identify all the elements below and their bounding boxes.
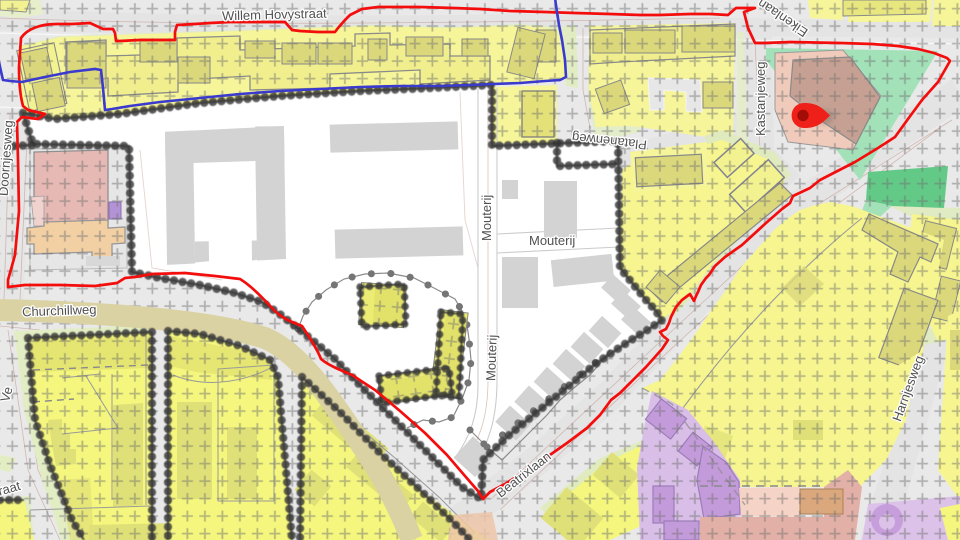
svg-text:Kastanjeweg: Kastanjeweg <box>753 62 768 136</box>
svg-text:Mouterij: Mouterij <box>529 233 575 248</box>
svg-text:Mouterij: Mouterij <box>479 195 494 241</box>
svg-text:Willem Hovystraat: Willem Hovystraat <box>222 6 327 24</box>
svg-text:Churchillweg: Churchillweg <box>22 302 97 320</box>
svg-text:Mouterij: Mouterij <box>483 334 500 381</box>
